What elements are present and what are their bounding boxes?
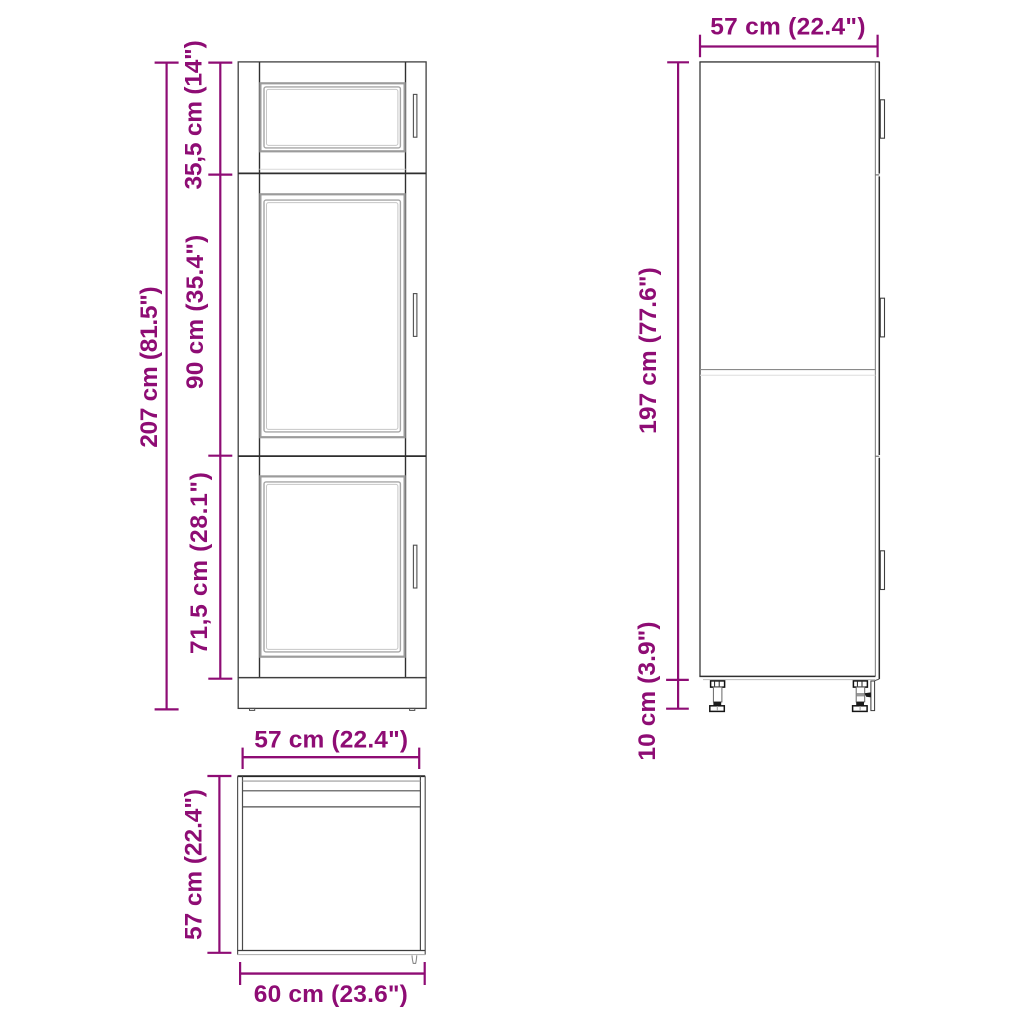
svg-text:207 cm (81.5"): 207 cm (81.5") bbox=[136, 287, 163, 448]
svg-text:90 cm (35.4"): 90 cm (35.4") bbox=[182, 234, 209, 389]
svg-text:60 cm (23.6"): 60 cm (23.6") bbox=[254, 981, 408, 1008]
svg-text:71,5 cm (28.1"): 71,5 cm (28.1") bbox=[186, 471, 213, 654]
svg-text:10 cm (3.9"): 10 cm (3.9") bbox=[634, 621, 661, 760]
svg-text:197 cm (77.6"): 197 cm (77.6") bbox=[635, 267, 662, 434]
svg-text:57 cm (22.4"): 57 cm (22.4") bbox=[181, 789, 208, 940]
svg-text:57 cm (22.4"): 57 cm (22.4") bbox=[710, 14, 866, 41]
svg-text:35,5 cm (14"): 35,5 cm (14") bbox=[181, 40, 208, 189]
svg-text:57 cm (22.4"): 57 cm (22.4") bbox=[254, 727, 408, 754]
